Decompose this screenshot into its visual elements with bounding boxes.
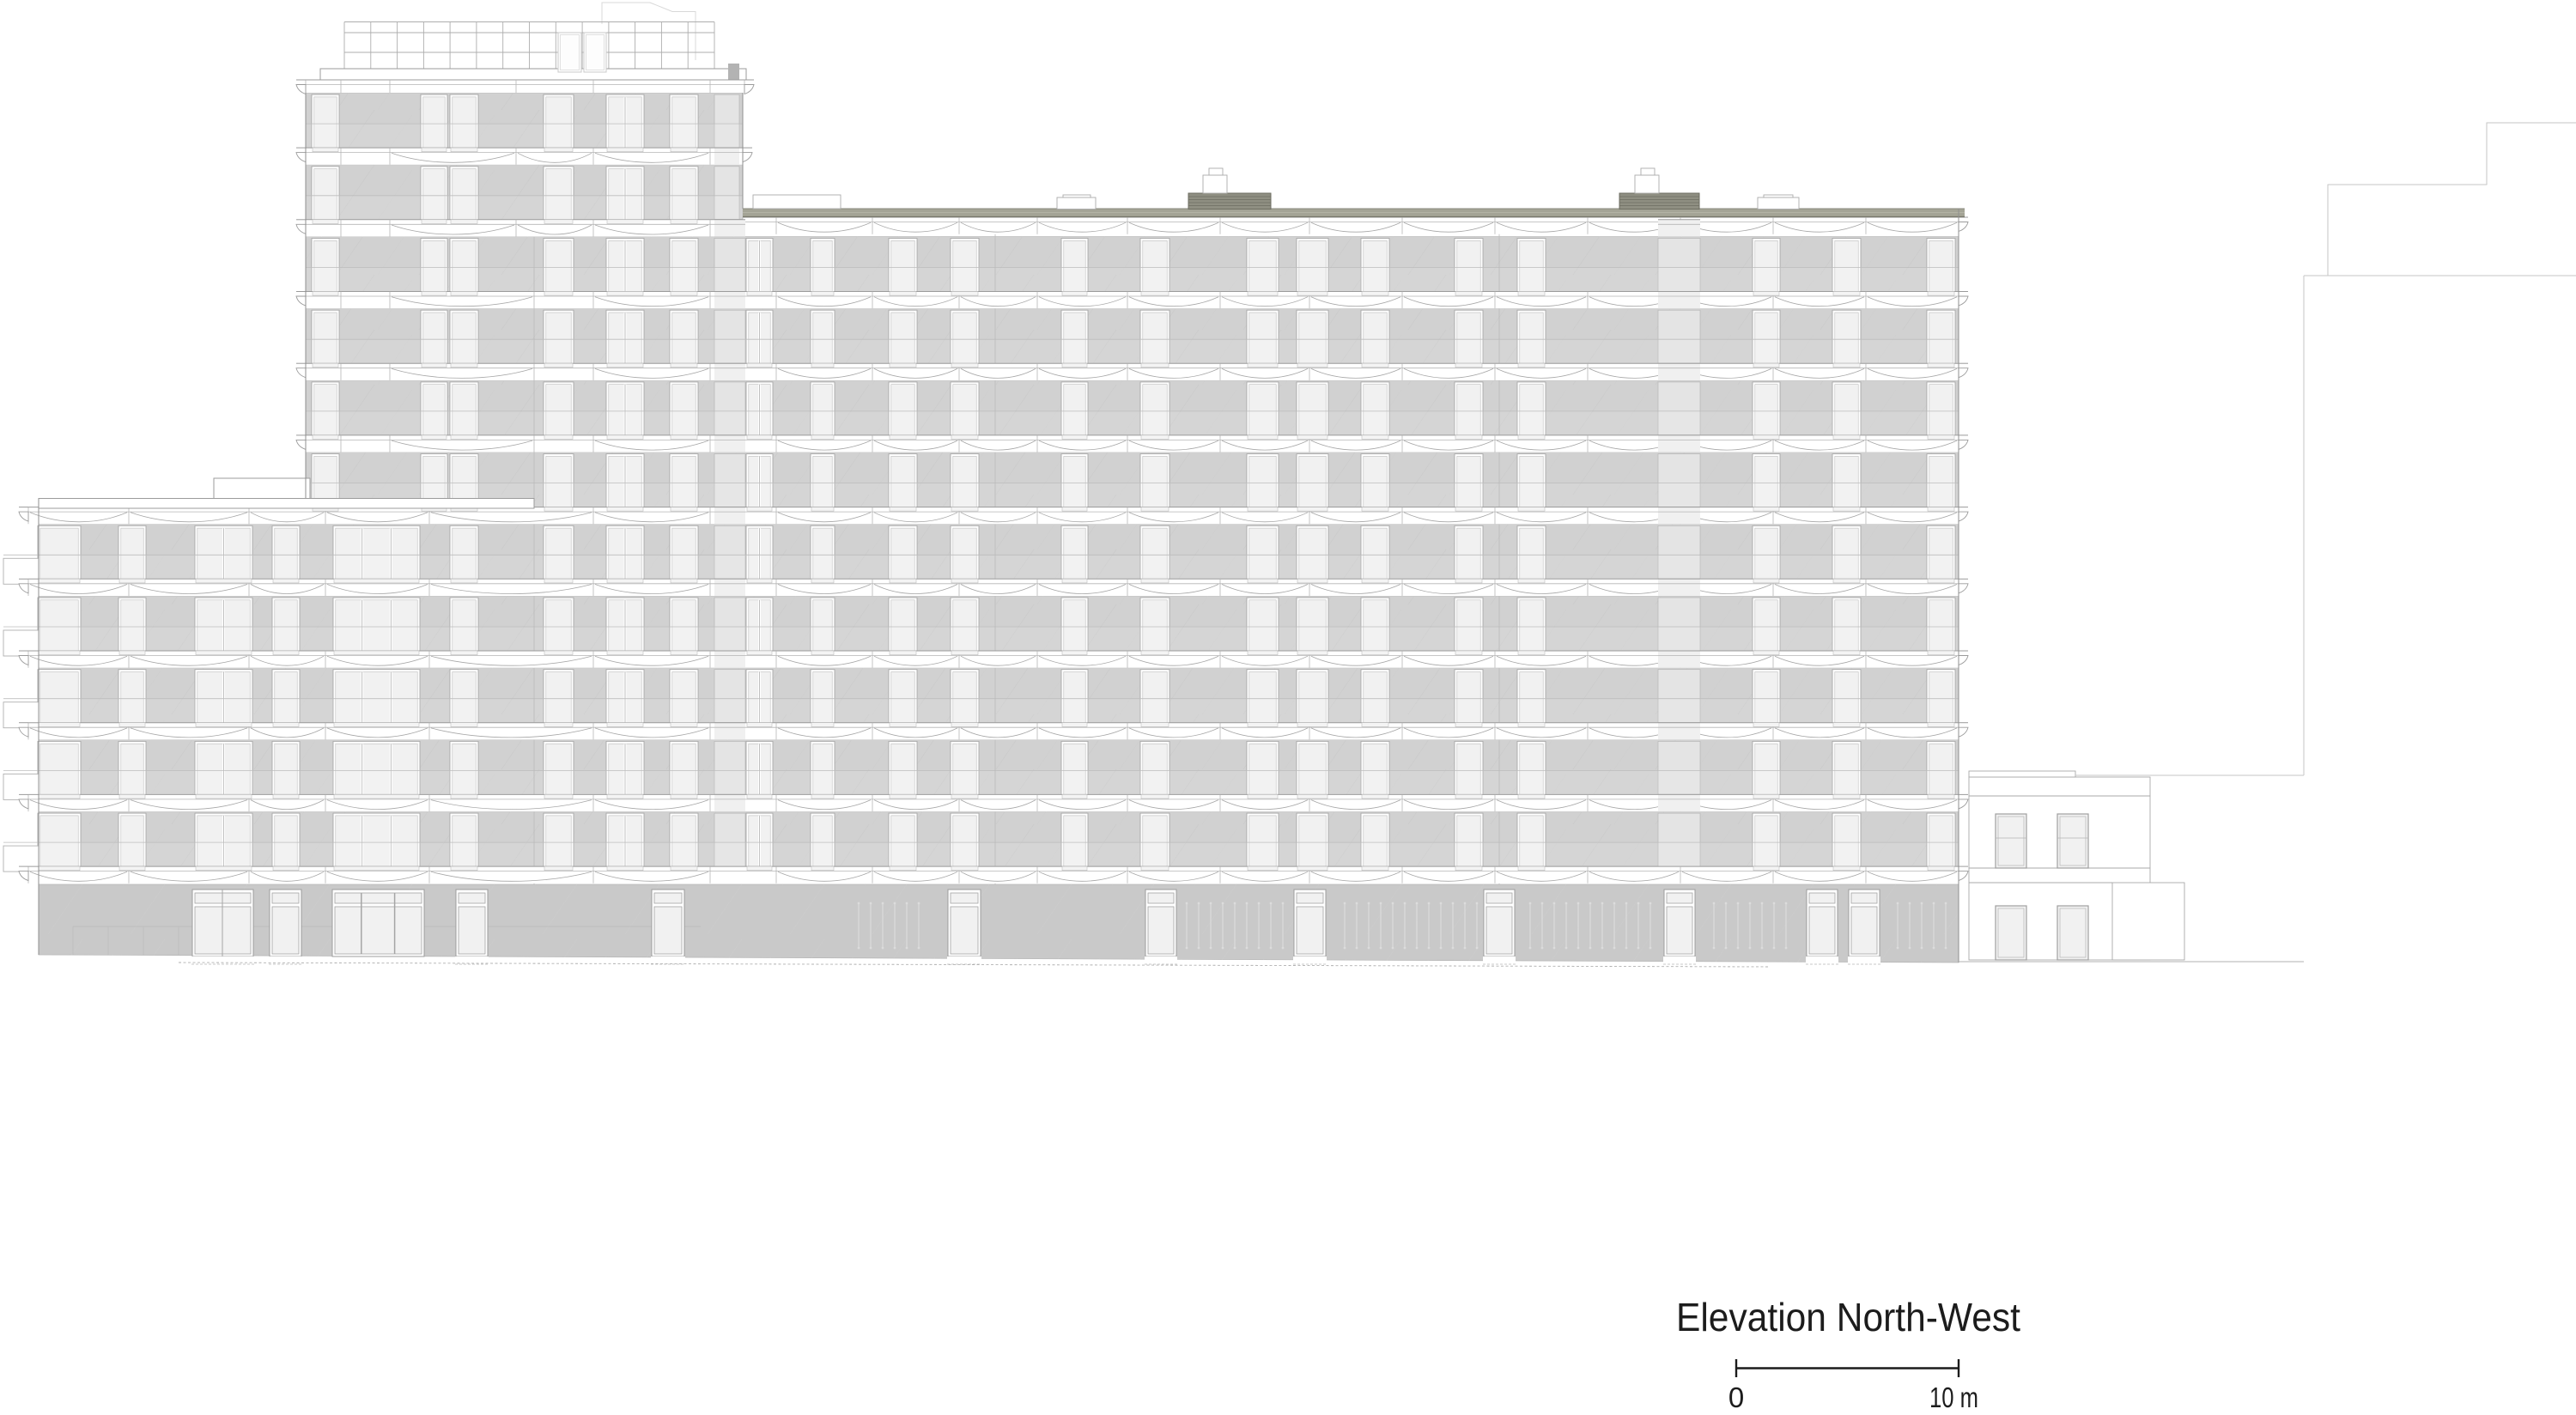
svg-text:Elevation North-West: Elevation North-West [1676,1295,2020,1339]
svg-text:10 m: 10 m [1929,1382,1978,1413]
svg-text:0: 0 [1728,1382,1744,1413]
